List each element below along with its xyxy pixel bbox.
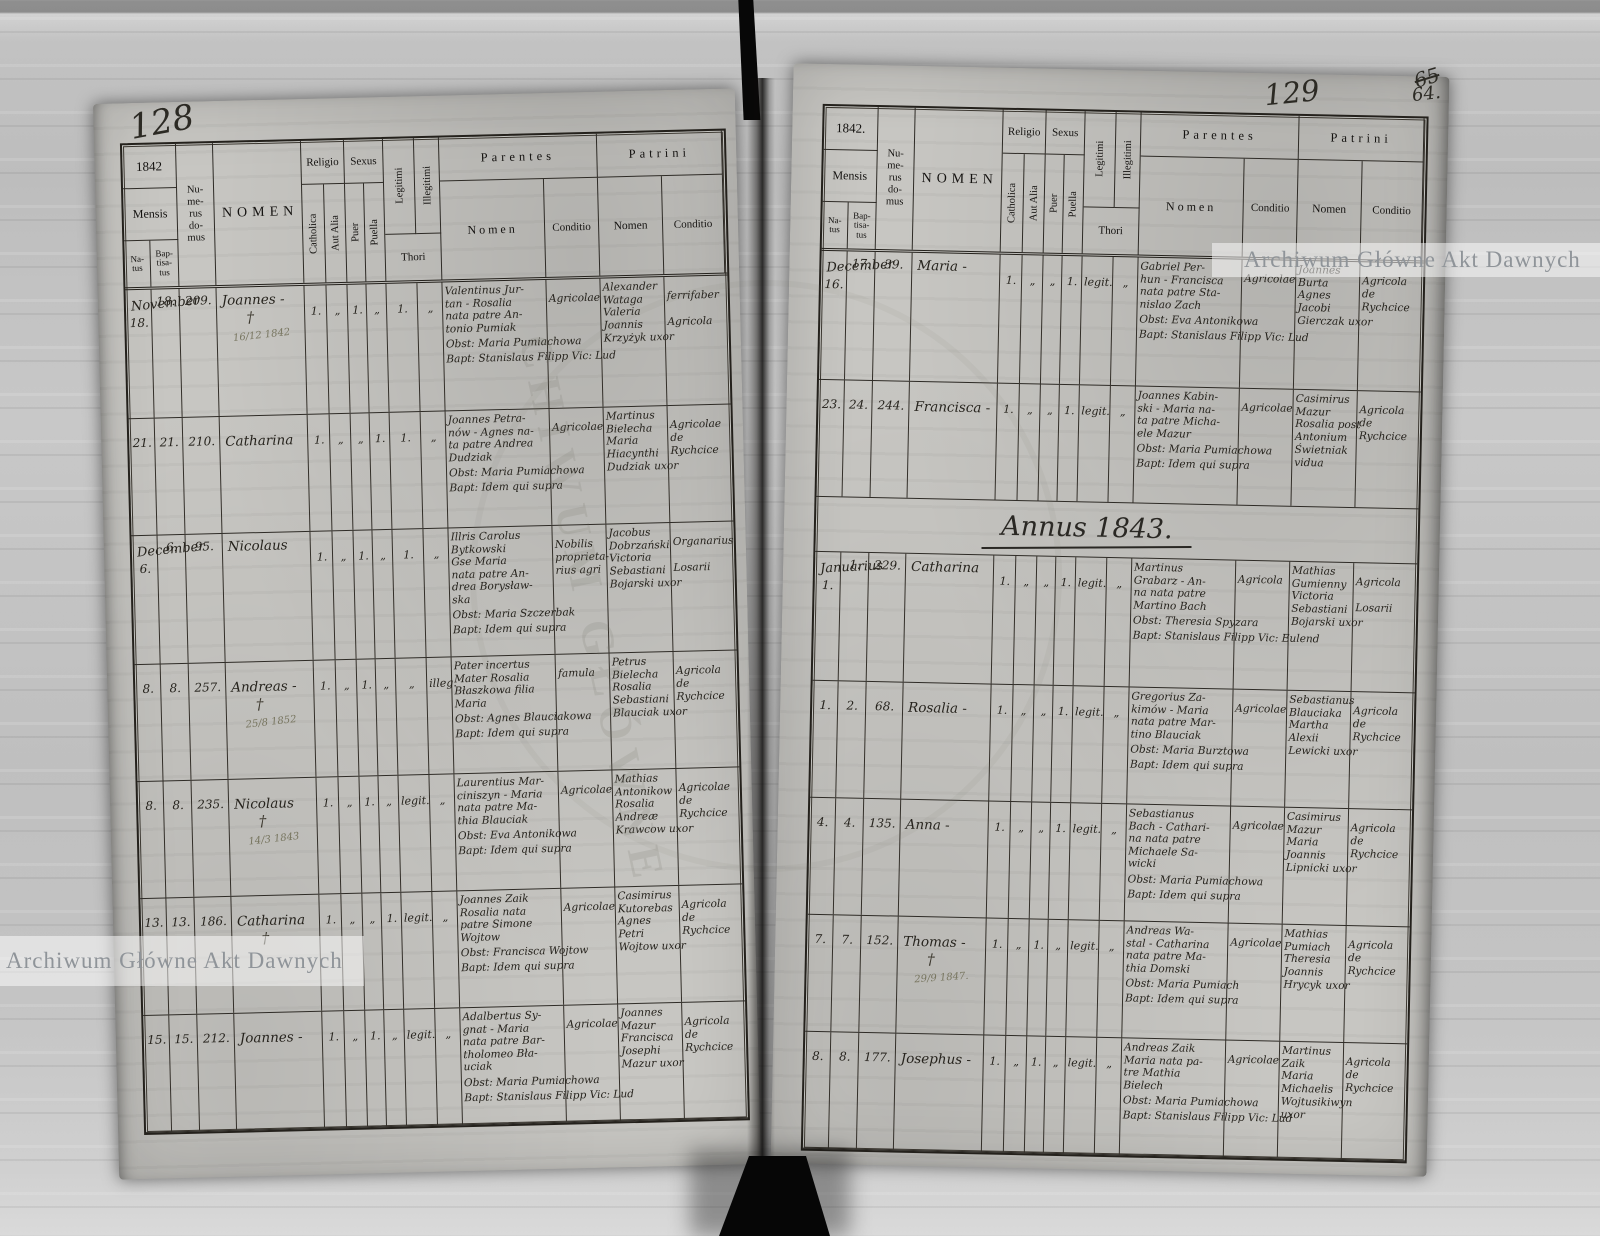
child-name: Thomas -: [900, 920, 985, 952]
mark-puer: 1.: [350, 287, 366, 316]
mark-aut-alia: „: [1008, 1039, 1026, 1068]
mark-aut-alia: „: [1012, 805, 1030, 834]
mark-aut-alia-cell: „: [1009, 802, 1032, 918]
mark-catholica: 1.: [988, 922, 1007, 951]
mark-puer: „: [353, 416, 369, 445]
mark-legitimi-cell: legit.: [1077, 385, 1110, 502]
baptisatus-label: Bap- tisa- tus: [150, 240, 179, 287]
patrini-names-cell: Petrus Bielecha Rosalia Sebastiani Blauc…: [610, 652, 677, 770]
mark-illegitimi-cell: „: [423, 528, 451, 657]
religio-label: Religio: [1003, 110, 1047, 155]
mark-catholica-cell: 1.: [987, 802, 1011, 918]
mark-puella-cell: 1.: [381, 893, 404, 1009]
parentes-label: Parentes: [439, 134, 598, 182]
mark-legitimi-cell: „: [396, 658, 430, 775]
mark-puella-cell: „: [384, 1010, 407, 1126]
patrini-label: Patrini: [597, 131, 723, 178]
child-name-cell: Nicolaus † 14/3 1843: [229, 778, 320, 896]
mark-illegitimi: „: [1109, 561, 1131, 590]
patrini-conditio-label: Conditio: [662, 175, 725, 274]
patrini-names-cell: Martinus Bielecha Maria Hiacynthi Dudzia…: [604, 406, 671, 524]
mark-legitimi: legit.: [406, 1012, 434, 1042]
mark-catholica-cell: 1.: [995, 384, 1019, 500]
natus-date-cell: 23.: [817, 380, 845, 497]
thori-label: Thori: [385, 234, 442, 281]
natus-label: Na- tus: [124, 241, 151, 288]
mark-catholica: 1.: [993, 688, 1012, 717]
nomen-label: NOMEN: [213, 141, 304, 285]
obstetrix-line: Obst: Maria Pumiach: [1125, 977, 1239, 991]
patrini-names-cell: Casimirus Mazur Rosalia post Antonium Św…: [1291, 390, 1357, 507]
mark-puer: „: [1042, 388, 1058, 417]
mark-legitimi-cell: 1.: [392, 529, 426, 658]
folio-number-left: 128: [126, 97, 197, 148]
numerus-domus-label: Nu- me- rus do- mus: [876, 107, 916, 250]
mark-puella: „: [378, 662, 395, 691]
baptizer-line: Bapt: Idem qui supra: [1125, 992, 1239, 1006]
natus-date: 6.: [134, 560, 156, 577]
left-table-rows: November 18. 18. 209. Joannes - † 16/12 …: [126, 276, 748, 1133]
mark-catholica: 1.: [996, 559, 1015, 588]
parents-names-cell: Joannes Kabin- ski - Maria na- ta patre …: [1133, 386, 1239, 504]
house-number: 210.: [185, 420, 219, 449]
baptisatus-date: 13.: [168, 901, 193, 930]
parents-text: Andreas Wa- stal - Catharina nata patre …: [1126, 924, 1235, 976]
parents-names-cell: Andreas Zaik Maria nata pa- tre Mathia B…: [1120, 1038, 1226, 1156]
mark-legitimi: legit.: [1081, 388, 1109, 418]
child-name: Rosalia -: [905, 686, 990, 718]
puer-label: Puer: [1044, 155, 1065, 253]
child-name: Francisca -: [911, 385, 996, 417]
baptism-record-row: 1. 2. 68. Rosalia - 1. „ „ 1. legit. „ G…: [810, 681, 1414, 811]
child-name: Catharina: [908, 557, 992, 577]
house-number-cell: 177.: [857, 1033, 896, 1150]
parents-names-cell: Joannes Zaik Rosalia nata patre Simone W…: [457, 889, 564, 1008]
death-date-note: 25/8 1852: [229, 712, 314, 732]
mark-catholica-cell: 1.: [308, 414, 333, 531]
natus-date-cell: December 16.: [819, 251, 848, 380]
natus-date: 8.: [140, 785, 163, 814]
mark-aut-alia: „: [1018, 559, 1036, 588]
parents-text: Laurentius Mar- ciniszyn - Maria nata pa…: [457, 775, 566, 828]
child-name: Joannes -: [219, 289, 303, 309]
death-cross: †: [900, 950, 962, 969]
mark-illegitimi: „: [426, 531, 448, 561]
patrini-text: Alexander Wataga Valeria Joannis Krzyżyk…: [602, 280, 688, 346]
death-date-note: 29/9 1847.: [899, 970, 984, 987]
child-name: Nicolaus: [225, 535, 309, 555]
mark-catholica: 1.: [321, 897, 340, 926]
house-number-cell: 212.: [197, 1014, 237, 1131]
natus-date: 8.: [807, 1035, 830, 1063]
baptizer-line: Bapt: Idem qui supra: [449, 480, 563, 495]
baptizer-line: Bapt: Idem qui supra: [458, 843, 572, 858]
baptism-record-row: 7. 7. 152. Thomas - † 29/9 1847. 1. „ 1.…: [805, 915, 1409, 1045]
mark-catholica-cell: 1.: [992, 556, 1017, 684]
mark-aut-alia: „: [329, 288, 347, 317]
mark-puer: 1.: [1029, 1039, 1045, 1068]
child-name-cell: Francisca -: [908, 382, 998, 500]
mark-puella: 1.: [1055, 689, 1072, 718]
parents-conditio: Agricolae: [1235, 693, 1285, 717]
mark-legitimi-cell: legit.: [1064, 1037, 1097, 1154]
obstetrix-line: Obst: Maria Pumiachowa: [1127, 873, 1263, 888]
mark-aut-alia: „: [335, 534, 353, 563]
parents-conditio-cell: Nobilis proprieta- rius agri: [552, 525, 609, 654]
child-name-cell: Anna -: [899, 800, 989, 918]
patrini-text: Joannes Mazur Francisca Josephi Mazur ux…: [620, 1005, 706, 1071]
mark-legitimi-cell: legit.: [1080, 256, 1114, 385]
patrini-names-cell: Sebastianus Blauciaka Martha Alexii Lewi…: [1285, 691, 1351, 808]
mark-puella: 1.: [383, 896, 400, 925]
parents-conditio: Agricolae: [1241, 392, 1291, 416]
baptisatus-date: 8.: [833, 1035, 858, 1063]
mark-puella-cell: 1.: [1051, 686, 1073, 802]
child-name-cell: Josephus -: [894, 1034, 984, 1152]
nomen-label: NOMEN: [913, 108, 1004, 252]
mark-illegitimi: „: [1112, 389, 1134, 418]
mark-catholica: 1.: [986, 1038, 1005, 1067]
baptizer-line: Bapt: Idem qui supra: [1127, 888, 1241, 902]
mark-legitimi-cell: legit.: [401, 892, 435, 1009]
mark-legitimi: legit.: [1068, 1040, 1096, 1070]
house-number: 257.: [191, 666, 225, 695]
mark-illegitimi: „: [1115, 260, 1137, 289]
left-page: 128 1842 Mensis Na- tus Bap- tisa- tus N…: [93, 88, 761, 1179]
aut-alia-label: Aut Alia: [324, 184, 347, 282]
right-page: 129 65 64. 1842. Mensis Na- tus Bap- tis…: [771, 63, 1450, 1176]
child-name-cell: Joannes - † 16/12 1842: [216, 286, 307, 416]
mark-legitimi-cell: 1.: [386, 283, 420, 412]
patrini-names-cell: Jacobus Dobrzański Victoria Sebastiani B…: [606, 523, 673, 653]
parents-conditio-cell: Agricolae: [1229, 807, 1285, 924]
mark-catholica: 1.: [307, 288, 326, 317]
mark-illegitimi: „: [437, 1011, 459, 1041]
death-cross: †: [228, 694, 290, 714]
parents-names-cell: Valentinus Jur- tan - Rosalia nata patre…: [442, 280, 549, 411]
natus-date-cell: 8.: [135, 665, 164, 782]
mark-illegitimi-cell: „: [1102, 687, 1129, 803]
child-name: Maria -: [914, 256, 998, 276]
mark-puella: „: [1048, 1040, 1065, 1069]
mark-puella: 1.: [1061, 388, 1078, 417]
obstetrix-line: Obst: Theresia Spyzara: [1133, 614, 1259, 629]
mark-aut-alia-cell: „: [1014, 556, 1038, 684]
natus-date: 4.: [812, 801, 835, 829]
house-number: 186.: [196, 900, 230, 929]
parents-names-cell: Sebastianus Bach - Cathari- na nata patr…: [1125, 804, 1231, 922]
baptisatus-label: Bap- tisa- tus: [848, 202, 877, 249]
mark-catholica: 1.: [319, 780, 338, 809]
mark-legitimi: 1.: [392, 415, 420, 445]
numerus-domus-label: Nu- me- rus do- mus: [176, 143, 216, 286]
mark-legitimi-cell: 1.: [390, 412, 424, 529]
patrini-names-cell: Joannes Mazur Francisca Josephi Mazur ux…: [618, 1003, 685, 1121]
corner-mark: 64.: [1412, 85, 1442, 104]
natus-date: 18.: [128, 314, 150, 331]
mark-legitimi: legit.: [1070, 923, 1098, 953]
mark-aut-alia-cell: „: [1011, 685, 1034, 801]
mark-illegitimi-cell: „: [1100, 804, 1127, 920]
mark-catholica-cell: 1.: [984, 918, 1008, 1034]
mark-catholica-cell: 1.: [982, 1035, 1006, 1151]
register-table-header: 1842 Mensis Na- tus Bap- tisa- tus Nu- m…: [122, 131, 727, 291]
baptism-record-row: 15. 15. 212. Joannes - 1. „ 1. „ legit. …: [143, 1001, 748, 1133]
mark-legitimi-cell: legit.: [1066, 920, 1099, 1037]
mark-puella-cell: „: [1046, 920, 1068, 1036]
mark-legitimi: „: [398, 661, 426, 691]
mark-legitimi-cell: legit.: [1074, 557, 1108, 686]
natus-date-cell: 1.: [810, 681, 838, 798]
mark-puer: „: [1033, 805, 1049, 834]
patrini-nomen-label: Nomen: [598, 176, 664, 276]
mark-aut-alia-cell: „: [1017, 384, 1040, 500]
mark-puella-cell: 1.: [1054, 557, 1077, 685]
baptisatus-date: 4.: [838, 801, 863, 829]
natus-date-cell: 7.: [805, 915, 833, 1032]
patrini-label: Patrini: [1299, 116, 1425, 163]
mark-puer-cell: 1.: [1027, 919, 1048, 1035]
death-date-note: 14/3 1843: [232, 829, 317, 849]
mark-aut-alia: „: [338, 663, 356, 692]
baptism-record-row: Januarius 1. 1. 229. Catharina 1. „ „ 1.…: [813, 552, 1418, 694]
mark-puella: „: [1050, 923, 1067, 952]
parents-conditio: Agricolae: [563, 891, 614, 915]
natus-date: 16.: [823, 275, 845, 291]
parents-text: Pater incertus Mater Rosalia Błaszkowa f…: [454, 658, 563, 711]
baptism-record-row: 8. 8. 177. Josephus - 1. „ 1. „ legit. „…: [803, 1032, 1407, 1162]
baptisatus-date-cell: 8.: [164, 781, 195, 898]
thori-label: Thori: [1083, 207, 1140, 254]
baptism-record-row: 21. 21. 210. Catharina 1. „ „ 1. 1. „ Jo…: [129, 405, 734, 537]
mark-puella-cell: „: [1044, 1037, 1066, 1153]
mark-catholica: 1.: [310, 417, 329, 446]
baptisatus-date: 15.: [171, 1018, 196, 1047]
baptisatus-date-cell: 8.: [161, 664, 192, 781]
mark-catholica: 1.: [999, 387, 1018, 416]
mark-illegitimi-cell: „: [1108, 386, 1135, 502]
mark-catholica: 1.: [313, 534, 332, 563]
obstetrix-line: Obst: Maria Burztowa: [1130, 743, 1249, 757]
house-number-cell: 152.: [859, 916, 898, 1033]
mark-illegitimi-cell: „: [429, 774, 457, 891]
mark-legitimi: legit.: [1072, 806, 1100, 836]
parents-text: Adalbertus Sy- gnat - Maria nata patre B…: [462, 1009, 571, 1074]
mark-puella-cell: „: [378, 776, 401, 892]
mark-legitimi: legit.: [403, 895, 431, 925]
baptisatus-date: 8.: [163, 667, 188, 696]
right-table-header-slot: 1842. Mensis Na- tus Bap- tisa- tus Nu- …: [822, 106, 1427, 264]
parents-names-cell: Gregorius Za- kimów - Maria nata patre M…: [1127, 687, 1233, 805]
mark-catholica-cell: 1.: [304, 285, 329, 413]
parents-text: Valentinus Jur- tan - Rosalia nata patre…: [444, 283, 553, 336]
register-table-header: 1842. Mensis Na- tus Bap- tisa- tus Nu- …: [822, 106, 1427, 264]
mark-aut-alia: „: [1024, 258, 1042, 287]
parents-text: Martinus Grabarz - An- na nata patre Mar…: [1133, 561, 1242, 613]
mark-puer: 1.: [1031, 922, 1047, 951]
parents-text: Illris Carolus Bytkowski Gse Maria nata …: [451, 529, 561, 607]
mensis-label: Mensis: [123, 188, 178, 241]
natus-date: 13.: [142, 901, 165, 930]
mark-aut-alia: „: [1021, 387, 1039, 416]
mark-aut-alia-cell: „: [344, 1011, 368, 1127]
parents-text: Gregorius Za- kimów - Maria nata patre M…: [1130, 690, 1239, 742]
house-number: 68.: [868, 685, 902, 714]
mark-illegitimi: „: [1106, 690, 1128, 719]
parents-conditio: Nobilis proprieta- rius agri: [554, 528, 605, 579]
natus-date: 21.: [131, 422, 154, 451]
mark-catholica-cell: 1.: [316, 777, 341, 894]
child-name-cell: Rosalia -: [901, 683, 991, 801]
mark-legitimi: legit.: [401, 778, 429, 808]
mark-legitimi-cell: legit.: [398, 775, 432, 892]
parents-conditio: Agricolae: [566, 1007, 617, 1031]
patrini-text: Mathias Pumiach Theresia Joannis Hrycyk …: [1283, 928, 1368, 993]
mark-puer: „: [1045, 259, 1061, 288]
mark-aut-alia-cell: „: [330, 414, 354, 530]
puella-label: Puella: [1063, 155, 1085, 253]
mark-illegitimi-cell: „: [435, 1008, 463, 1125]
parents-text: Joannes Petra- nów - Agnes na- ta patre …: [448, 412, 557, 465]
natus-date-cell: 8.: [138, 781, 167, 898]
puella-label: Puella: [364, 183, 386, 281]
child-name: Catharina: [233, 898, 318, 930]
mark-puella: 1.: [1058, 560, 1075, 589]
child-name-cell: Catharina: [904, 554, 995, 684]
baptizer-line: Bapt: Idem qui supra: [455, 726, 569, 741]
folio-number-right: 129: [1262, 73, 1321, 112]
patrini-names-cell: Mathias Pumiach Theresia Joannis Hrycyk …: [1280, 925, 1346, 1042]
mark-catholica-cell: 1.: [989, 685, 1013, 801]
baptisatus-date-cell: 21.: [155, 418, 186, 535]
mark-illegitimi: „: [419, 286, 441, 316]
parents-text: Joannes Zaik Rosalia nata patre Simone W…: [459, 892, 568, 945]
parents-conditio: Agricolae: [1228, 1044, 1278, 1068]
mark-illegitimi: „: [1101, 924, 1123, 953]
aut-alia-label: Aut Alia: [1023, 154, 1046, 252]
mark-puella: „: [375, 533, 392, 562]
patrini-text: Casimirus Mazur Rosalia post Antonium Św…: [1294, 393, 1380, 471]
house-number: 212.: [199, 1017, 233, 1046]
religio-label: Religio: [301, 140, 345, 185]
natus-date: 23.: [820, 383, 843, 411]
parents-names-cell: Adalbertus Sy- gnat - Maria nata patre B…: [460, 1006, 567, 1125]
natus-date-cell: 4.: [808, 798, 836, 915]
patrini-text: Casimirus Mazur Maria Joannis Lipnicki u…: [1286, 811, 1371, 876]
left-table-header-slot: 1842 Mensis Na- tus Bap- tisa- tus Nu- m…: [122, 131, 727, 291]
mark-aut-alia: „: [346, 1014, 364, 1043]
baptizer-line: Bapt: Idem qui supra: [1130, 758, 1244, 772]
parents-conditio: Agricolae: [1230, 927, 1280, 951]
house-number: 135.: [866, 802, 900, 831]
child-name: Josephus -: [898, 1037, 983, 1069]
mark-puer: 1.: [356, 533, 372, 562]
mark-illegitimi: „: [423, 415, 445, 445]
mark-legitimi-cell: legit.: [1071, 686, 1104, 803]
house-number: 152.: [863, 919, 897, 948]
parents-names-cell: Gabriel Per- hun - Francisca nata patre …: [1136, 258, 1243, 388]
baptism-record-row: 23. 24. 244. Francisca - 1. „ „ 1. legit…: [817, 380, 1421, 510]
baptisatus-date: 2.: [840, 684, 865, 712]
mark-illegitimi: „: [1099, 1041, 1121, 1070]
house-number: 244.: [874, 384, 908, 413]
natus-date-cell: 8.: [803, 1032, 831, 1149]
mark-puer-cell: „: [1032, 685, 1053, 801]
parents-text: Sebastianus Bach - Cathari- na nata patr…: [1128, 807, 1237, 872]
patrini-text: Martinus Bielecha Maria Hiacynthi Dudzia…: [606, 409, 692, 475]
baptism-record-row: 4. 4. 135. Anna - 1. „ „ 1. legit. „ Seb…: [808, 798, 1412, 928]
mark-puer: „: [1039, 560, 1055, 589]
mark-puer-cell: 1.: [1025, 1036, 1046, 1152]
mark-puer-cell: „: [1038, 385, 1059, 501]
baptisatus-date: 24.: [846, 383, 871, 411]
baptizer-line: Bapt: Idem qui supra: [453, 622, 567, 637]
natus-date-cell: December 6.: [132, 536, 161, 665]
illegitimi-label: Illegitimi: [1115, 112, 1142, 209]
obstetrix-line: Obst: Maria Pumiachowa: [1136, 443, 1272, 458]
house-number: 177.: [861, 1036, 895, 1065]
mark-puella-cell: 1.: [1049, 803, 1071, 919]
parents-conditio: Agricolae: [560, 774, 611, 798]
parents-names-cell: Laurentius Mar- ciniszyn - Maria nata pa…: [454, 772, 561, 891]
mark-catholica-cell: 1.: [314, 660, 339, 777]
death-cross: †: [231, 811, 293, 831]
parents-conditio: Agricolae: [1233, 810, 1283, 834]
mark-puer: 1.: [362, 779, 378, 808]
baptism-record-row: 8. 8. 257. Andreas - † 25/8 1852 1. „ 1.…: [135, 650, 740, 782]
mark-puella-cell: „: [376, 659, 399, 775]
mark-puella: 1.: [372, 416, 389, 445]
house-number-cell: 235.: [192, 780, 232, 897]
parents-names-cell: Andreas Wa- stal - Catharina nata patre …: [1122, 921, 1228, 1039]
child-name: Andreas -: [228, 664, 313, 696]
patrini-text: Jacobus Dobrzański Victoria Sebastiani B…: [608, 525, 694, 591]
parentes-nomen-label: Nomen: [440, 179, 546, 280]
mark-illegitimi-cell: „: [1111, 257, 1139, 385]
parentes-label: Parentes: [1141, 113, 1300, 160]
patrini-text: Casimirus Kutorebas Agnes Petri Wojtow u…: [617, 888, 703, 954]
obstetrix-line: Obst: Maria Pumiachowa: [1123, 1094, 1259, 1109]
mark-illegitimi: „: [434, 894, 456, 924]
mark-illegitimi: „: [432, 777, 454, 807]
mark-puer-cell: „: [1030, 802, 1051, 918]
house-number: 235.: [194, 783, 228, 812]
baptism-record-row: December 6. 6. 95. Nicolaus 1. „ 1. „ 1.…: [132, 521, 737, 665]
natus-date-cell: 21.: [129, 419, 158, 536]
mensis-label: Mensis: [823, 150, 878, 203]
parents-text: Joannes Kabin- ski - Maria na- ta patre …: [1137, 390, 1246, 442]
death-cross: †: [219, 307, 281, 327]
mark-illegitimi-cell: „: [1095, 1038, 1122, 1154]
house-number-cell: 135.: [862, 799, 901, 916]
mark-aut-alia-cell: „: [1020, 255, 1044, 383]
house-number-cell: 257.: [189, 663, 229, 780]
patrini-names-cell: Martinus Zaik Maria Michaelis Wojtusikiw…: [1278, 1042, 1344, 1159]
patrini-names-cell: Alexander Wataga Valeria Joannis Krzyżyk…: [600, 277, 667, 407]
mark-puer: 1.: [359, 662, 375, 691]
catholica-label: Catholica: [1001, 154, 1025, 252]
mark-legitimi: 1.: [389, 286, 417, 316]
parents-names-cell: Martinus Grabarz - An- na nata patre Mar…: [1130, 558, 1237, 688]
baptizer-line: Bapt: Stanislaus Filipp Vic: Lud: [1139, 329, 1309, 345]
child-name-cell: Catharina: [220, 415, 311, 533]
baptizer-line: Bapt: Stanislaus Filipp Vic: Eulend: [1133, 629, 1320, 645]
patrini-text: Petrus Bielecha Rosalia Sebastiani Blauc…: [612, 654, 698, 720]
right-table-rows: December 16. 17. 39. Maria - 1. „ „ 1. l…: [803, 251, 1424, 1161]
mark-aut-alia-cell: „: [336, 660, 360, 776]
mark-legitimi-cell: legit.: [404, 1009, 438, 1126]
natus-date-cell: November 18.: [126, 290, 155, 419]
